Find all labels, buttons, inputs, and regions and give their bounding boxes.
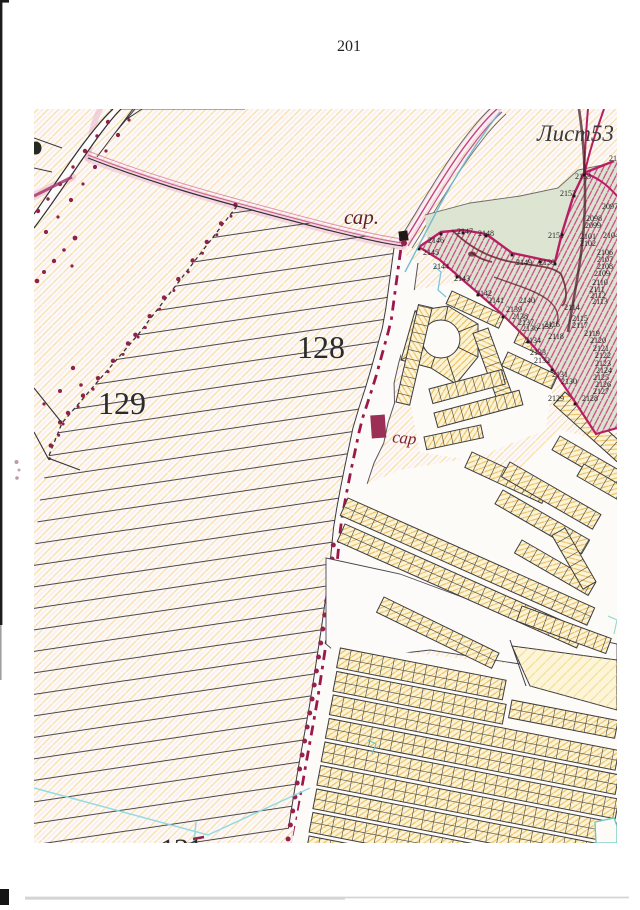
svg-text:2113: 2113 [592, 297, 608, 306]
svg-text:2151: 2151 [548, 231, 564, 240]
svg-text:2118: 2118 [548, 332, 564, 341]
svg-text:2143: 2143 [454, 274, 470, 283]
svg-text:201: 201 [337, 38, 361, 55]
svg-text:2127: 2127 [593, 387, 609, 396]
svg-text:2147: 2147 [457, 227, 473, 236]
svg-text:2148: 2148 [478, 229, 494, 238]
svg-text:2152: 2152 [560, 189, 576, 198]
svg-text:2153: 2153 [575, 172, 591, 181]
svg-text:2132: 2132 [534, 356, 550, 365]
svg-text:2130: 2130 [561, 377, 577, 386]
svg-text:2099: 2099 [585, 221, 601, 230]
svg-text:2134: 2134 [525, 336, 541, 345]
svg-text:2109: 2109 [594, 269, 610, 278]
svg-text:2104: 2104 [603, 231, 619, 240]
svg-text:2129: 2129 [548, 394, 564, 403]
svg-text:2145: 2145 [423, 248, 439, 257]
svg-text:2102: 2102 [580, 239, 596, 248]
svg-text:129: 129 [98, 385, 146, 421]
svg-text:2141: 2141 [488, 296, 504, 305]
svg-text:2149: 2149 [516, 258, 532, 267]
svg-text:2144: 2144 [433, 262, 449, 271]
svg-text:2097: 2097 [602, 202, 618, 211]
svg-text:21: 21 [609, 154, 617, 163]
svg-text:сар: сар [391, 427, 417, 448]
svg-text:2114: 2114 [564, 303, 580, 312]
svg-text:2136: 2136 [522, 324, 538, 333]
svg-text:2140: 2140 [519, 296, 535, 305]
svg-text:сар.: сар. [344, 205, 379, 229]
svg-text:2150: 2150 [539, 258, 555, 267]
svg-text:Лист53: Лист53 [536, 121, 614, 146]
svg-text:2116: 2116 [544, 320, 560, 329]
svg-text:2146: 2146 [428, 236, 444, 245]
svg-text:128: 128 [297, 329, 345, 365]
